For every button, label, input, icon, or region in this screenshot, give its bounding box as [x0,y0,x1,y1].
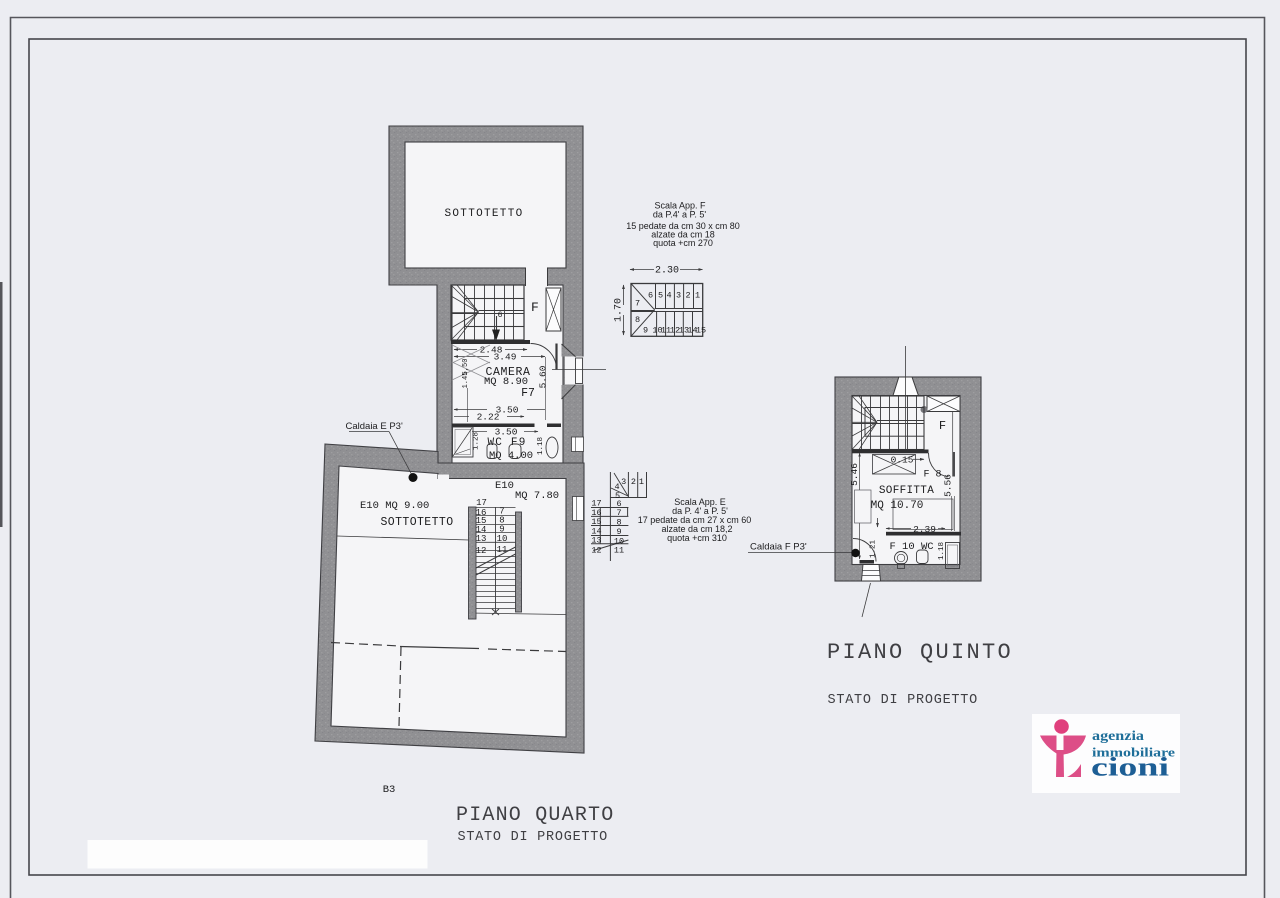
svg-text:12: 12 [476,546,487,556]
svg-text:quota +cm 310: quota +cm 310 [667,533,727,543]
svg-text:8: 8 [616,518,621,528]
svg-text:0.15: 0.15 [891,455,914,466]
svg-text:da P.4' a P. 5': da P.4' a P. 5' [653,210,706,220]
svg-text:11: 11 [497,545,508,555]
svg-text:13: 13 [476,534,487,544]
svg-text:agenzia: agenzia [1092,728,1144,743]
svg-text:1.21: 1.21 [870,540,878,559]
svg-text:6: 6 [648,291,653,301]
svg-text:MQ 4.00: MQ 4.00 [489,450,533,462]
svg-text:SOTTOTETTO: SOTTOTETTO [381,516,454,529]
svg-text:5: 5 [658,291,663,301]
svg-text:4: 4 [666,291,671,301]
svg-text:F: F [939,419,946,433]
svg-text:15: 15 [696,326,706,336]
svg-text:3.50: 3.50 [495,427,518,438]
svg-text:2: 2 [631,477,636,487]
svg-text:quota +cm 270: quota +cm 270 [653,238,713,248]
svg-text:1.70: 1.70 [614,298,625,322]
svg-text:17: 17 [476,498,487,508]
svg-text:E10 MQ 9.00: E10 MQ 9.00 [360,500,429,512]
svg-text:1.18: 1.18 [938,542,946,560]
svg-text:11: 11 [614,546,624,556]
svg-text:2.22: 2.22 [477,412,500,423]
svg-text:MQ 7.80: MQ 7.80 [515,490,559,502]
svg-text:5.56: 5.56 [943,474,954,497]
svg-text:7: 7 [635,299,640,309]
svg-text:STATO DI PROGETTO: STATO DI PROGETTO [458,830,608,845]
svg-text:STATO DI PROGETTO: STATO DI PROGETTO [828,693,978,708]
svg-text:2.30: 2.30 [655,266,679,277]
svg-text:5.46: 5.46 [849,463,860,486]
svg-text:Caldaia F P3': Caldaia F P3' [750,542,807,553]
svg-text:F7: F7 [521,387,535,400]
svg-text:F: F [531,300,539,315]
svg-text:9: 9 [499,525,504,535]
svg-text:E10: E10 [495,480,514,492]
svg-text:Caldaia E P3': Caldaia E P3' [346,421,403,432]
svg-text:1.18: 1.18 [537,437,545,455]
svg-text:1.45: 1.45 [462,372,470,389]
svg-text:3: 3 [621,477,626,487]
svg-text:2: 2 [685,291,690,301]
svg-text:5.60: 5.60 [538,365,549,388]
svg-text:F 8: F 8 [923,470,941,481]
svg-text:12: 12 [591,546,601,556]
svg-text:10: 10 [497,534,508,544]
svg-text:SOFFITTA: SOFFITTA [879,485,934,497]
svg-text:MQ 10.70: MQ 10.70 [871,500,924,512]
svg-text:3: 3 [676,291,681,301]
svg-text:cioni: cioni [1091,753,1169,782]
svg-text:9: 9 [616,527,621,537]
svg-text:SOTTOTETTO: SOTTOTETTO [444,208,523,220]
svg-text:B3: B3 [383,784,396,796]
svg-text:8: 8 [635,315,640,325]
svg-text:17: 17 [591,499,601,509]
svg-text:PIANO QUARTO: PIANO QUARTO [456,804,614,827]
svg-text:1.28: 1.28 [473,432,481,450]
svg-text:15: 15 [591,517,601,527]
svg-text:1: 1 [695,291,700,301]
svg-text:1: 1 [639,477,644,487]
svg-text:6: 6 [498,311,503,320]
svg-text:3.49: 3.49 [494,352,517,363]
svg-text:13: 13 [591,536,601,546]
svg-text:9: 9 [643,326,648,336]
svg-text:PIANO QUINTO: PIANO QUINTO [827,640,1013,665]
